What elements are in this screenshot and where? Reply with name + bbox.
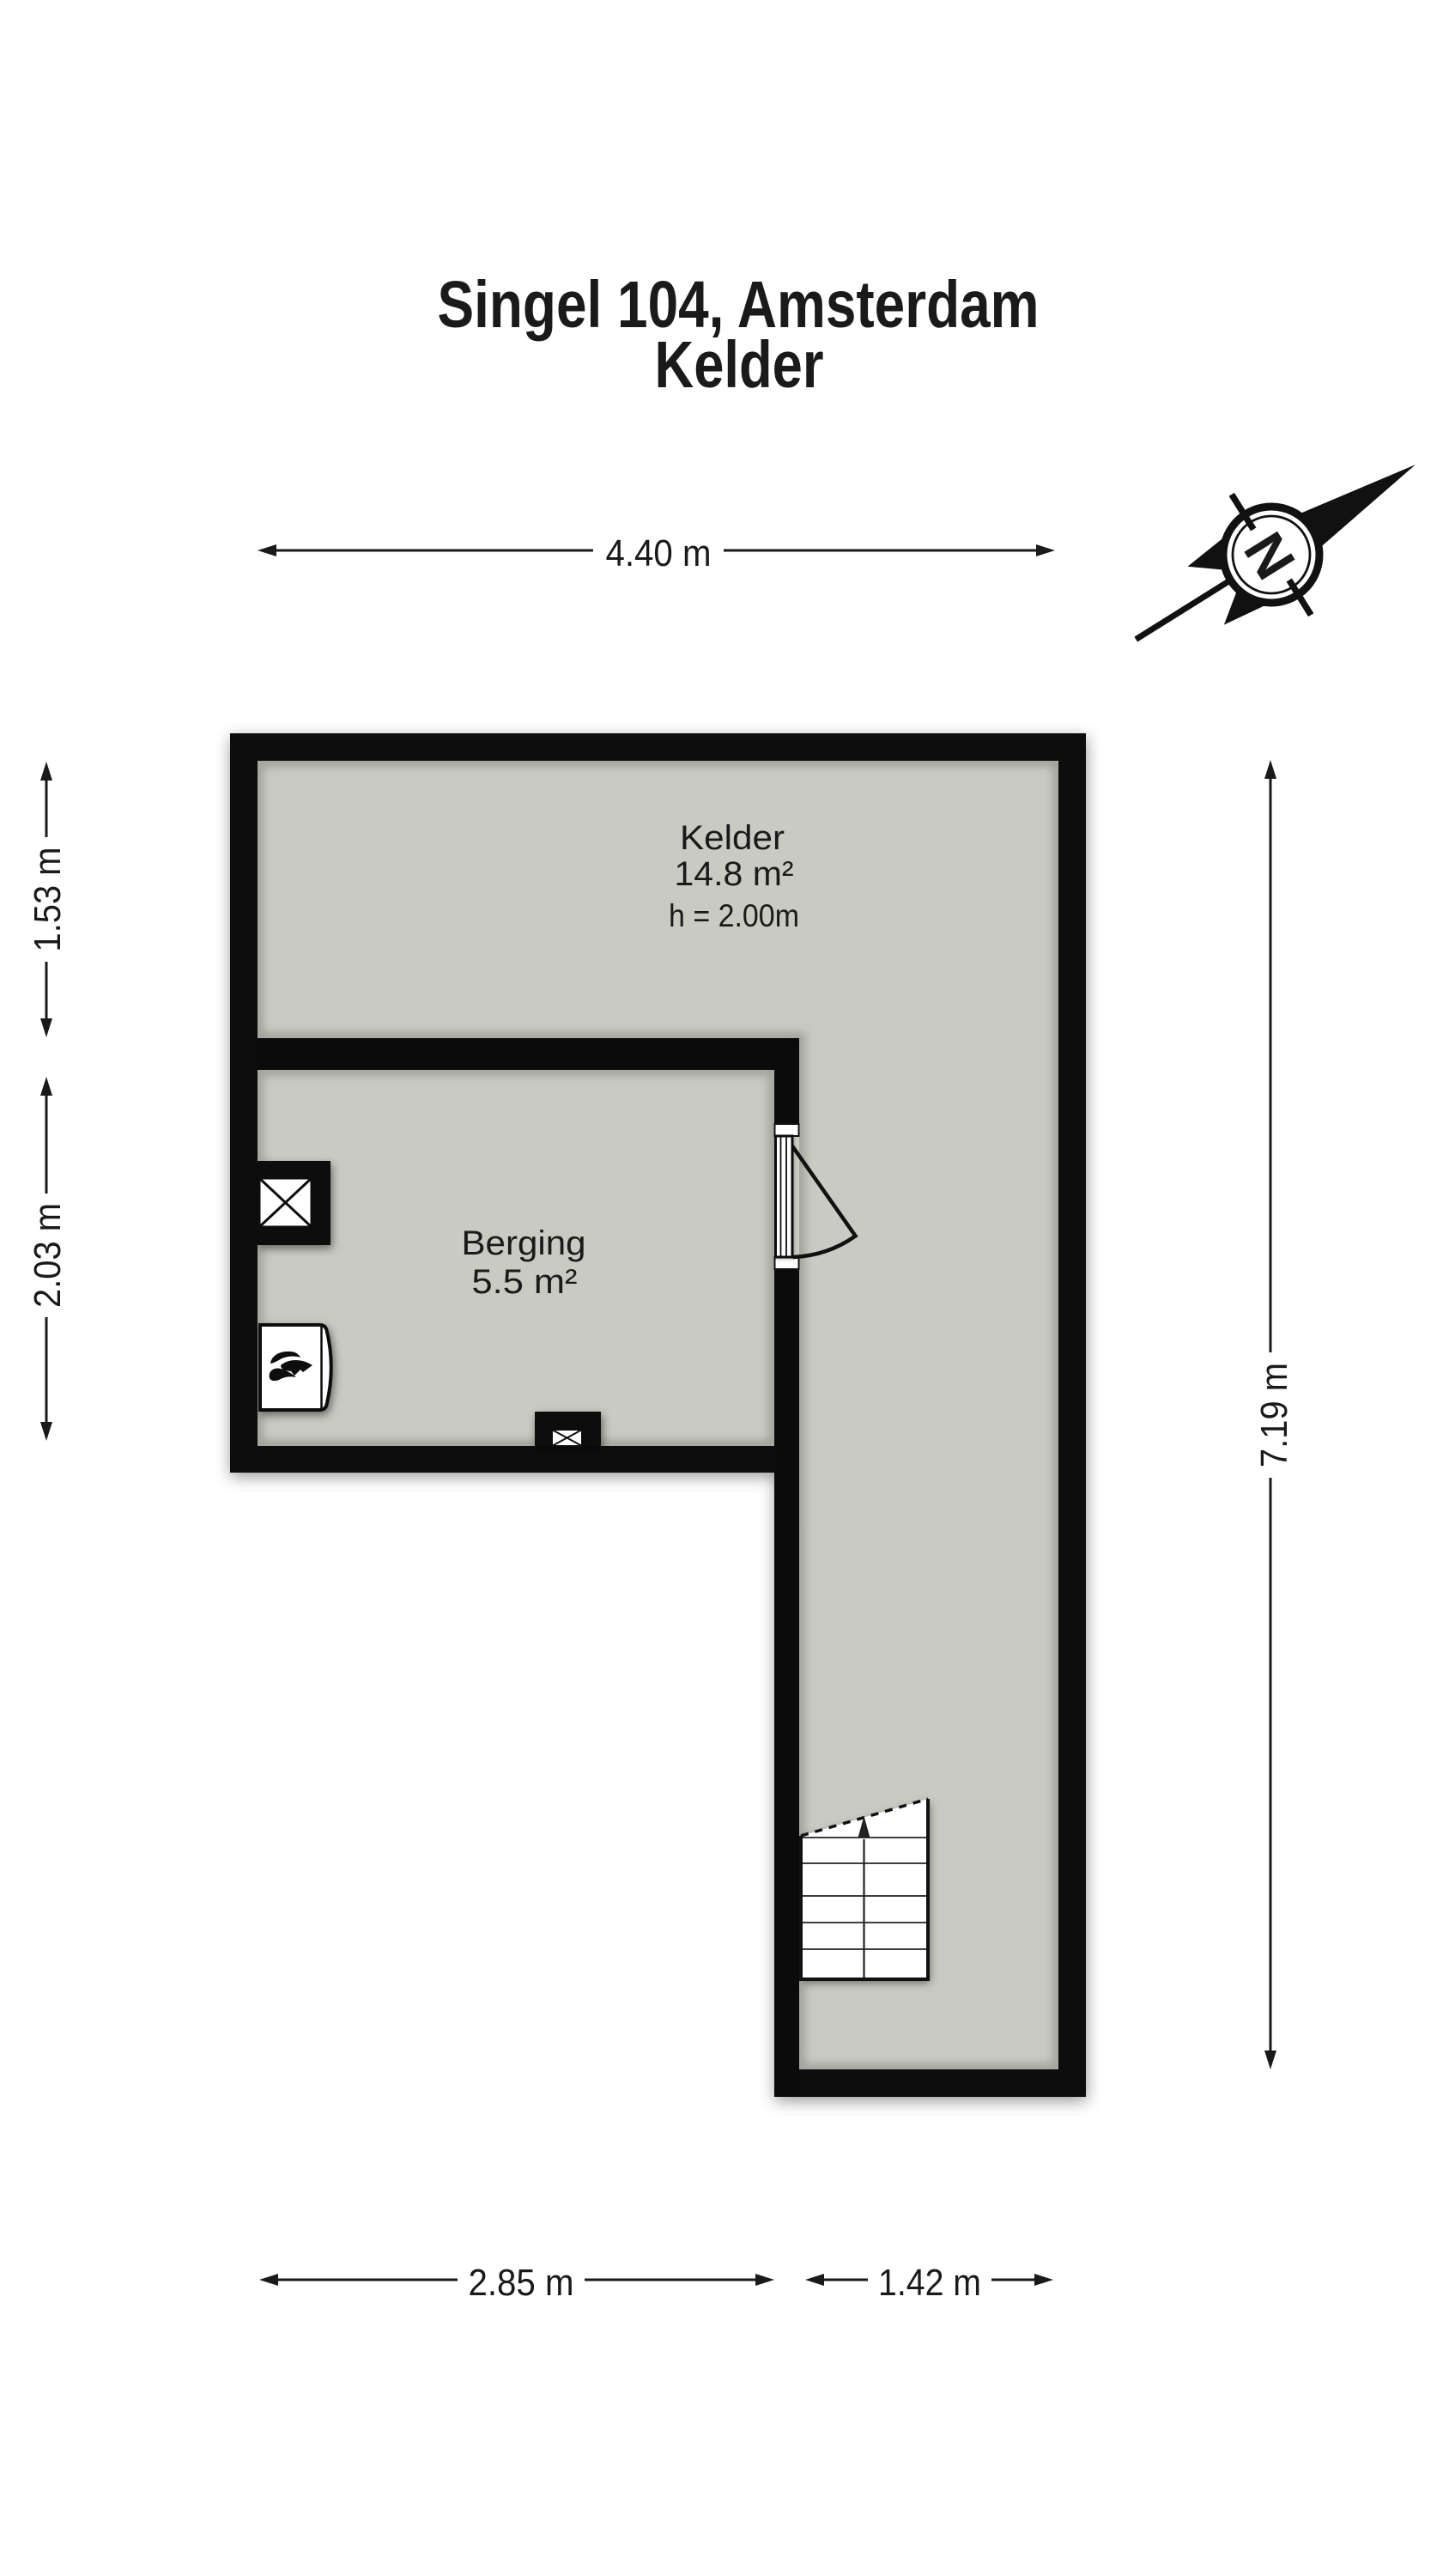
svg-text:Berging: Berging	[462, 1224, 586, 1262]
svg-text:5.5 m²: 5.5 m²	[472, 1263, 578, 1301]
svg-text:h = 2.00m: h = 2.00m	[669, 898, 799, 933]
svg-text:Kelder: Kelder	[680, 819, 785, 857]
svg-text:Kelder: Kelder	[655, 328, 824, 402]
svg-text:4.40 m: 4.40 m	[606, 532, 712, 574]
svg-text:14.8 m²: 14.8 m²	[675, 855, 794, 893]
svg-text:2.85 m: 2.85 m	[469, 2262, 574, 2304]
svg-text:1.42 m: 1.42 m	[878, 2262, 981, 2304]
svg-text:2.03 m: 2.03 m	[27, 1203, 69, 1308]
svg-text:1.53 m: 1.53 m	[27, 848, 69, 952]
svg-text:7.19 m: 7.19 m	[1253, 1363, 1295, 1467]
